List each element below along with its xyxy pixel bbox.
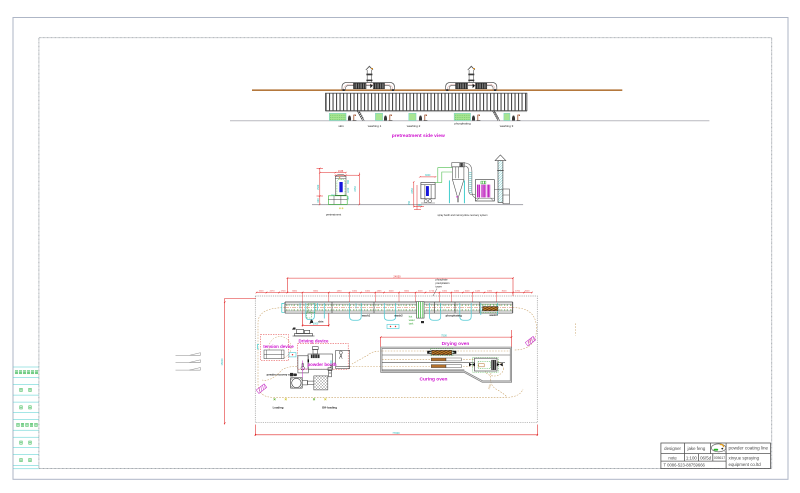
svg-text:wash1: wash1 bbox=[361, 314, 371, 318]
svg-text:xinyue spraying: xinyue spraying bbox=[729, 456, 760, 461]
svg-text:tank: tank bbox=[409, 323, 414, 326]
svg-text:3000: 3000 bbox=[313, 291, 319, 293]
svg-text:Driving device: Driving device bbox=[298, 338, 329, 343]
svg-text:Drying oven: Drying oven bbox=[442, 341, 470, 347]
svg-text:3000: 3000 bbox=[404, 291, 410, 293]
svg-text:skin: skin bbox=[318, 319, 324, 323]
svg-text:15000: 15000 bbox=[220, 358, 224, 366]
svg-text:3000: 3000 bbox=[425, 174, 431, 177]
svg-text:1500: 1500 bbox=[317, 184, 320, 190]
svg-text:tension device: tension device bbox=[263, 344, 294, 349]
svg-text:wash2: wash2 bbox=[393, 314, 403, 318]
svg-text:2350: 2350 bbox=[411, 188, 414, 194]
svg-text:1450: 1450 bbox=[337, 291, 343, 293]
svg-text:equipment co.ltd: equipment co.ltd bbox=[729, 462, 762, 467]
svg-text:1000: 1000 bbox=[352, 291, 358, 293]
svg-text:2270: 2270 bbox=[270, 291, 276, 293]
svg-text:1500: 1500 bbox=[259, 291, 265, 293]
svg-text:06/5d: 06/5d bbox=[700, 455, 712, 460]
svg-text:3000: 3000 bbox=[502, 291, 508, 293]
svg-text:1000: 1000 bbox=[465, 291, 471, 293]
svg-text:1716: 1716 bbox=[429, 291, 435, 293]
svg-text:T 0086-523-88759666: T 0086-523-88759666 bbox=[664, 463, 706, 468]
svg-text:tower: tower bbox=[436, 285, 442, 289]
svg-text:1000: 1000 bbox=[418, 291, 424, 293]
svg-text:1700: 1700 bbox=[515, 291, 521, 293]
svg-text:1445: 1445 bbox=[475, 291, 481, 293]
svg-text:powder coating line: powder coating line bbox=[729, 445, 769, 450]
svg-text:2000: 2000 bbox=[525, 291, 531, 293]
svg-text:1000: 1000 bbox=[365, 291, 371, 293]
svg-text:pretreatment side view: pretreatment side view bbox=[392, 133, 445, 139]
svg-text:1000: 1000 bbox=[389, 291, 395, 293]
svg-text:designer: designer bbox=[664, 446, 681, 451]
svg-text:1445: 1445 bbox=[377, 291, 383, 293]
svg-text:washing 3: washing 3 bbox=[500, 124, 514, 128]
svg-text:350: 350 bbox=[347, 179, 350, 184]
svg-text:Curing oven: Curing oven bbox=[420, 377, 448, 383]
svg-text:7500: 7500 bbox=[441, 333, 447, 337]
svg-text:1000: 1000 bbox=[487, 291, 493, 293]
svg-text:washing 2: washing 2 bbox=[407, 124, 421, 128]
svg-text:Loading: Loading bbox=[273, 406, 284, 410]
svg-text:skin: skin bbox=[338, 124, 344, 128]
svg-text:1:100: 1:100 bbox=[686, 455, 698, 460]
svg-text:1000: 1000 bbox=[454, 291, 460, 293]
svg-text:400: 400 bbox=[418, 204, 423, 207]
svg-text:2350: 2350 bbox=[354, 186, 357, 192]
svg-text:250: 250 bbox=[408, 200, 411, 205]
svg-text:005617: 005617 bbox=[714, 456, 725, 460]
svg-text:spray booth and monocyclone re: spray booth and monocyclone recovery sys… bbox=[438, 214, 488, 217]
svg-text:77000: 77000 bbox=[392, 431, 400, 435]
svg-text:600: 600 bbox=[317, 198, 320, 203]
svg-text:1000: 1000 bbox=[442, 291, 448, 293]
svg-text:phosphating: phosphating bbox=[454, 122, 471, 126]
svg-text:1700: 1700 bbox=[281, 291, 287, 293]
svg-text:washing 1: washing 1 bbox=[368, 124, 382, 128]
svg-text:3000: 3000 bbox=[292, 291, 298, 293]
svg-text:phosphating: phosphating bbox=[446, 314, 462, 318]
svg-text:note: note bbox=[668, 455, 677, 460]
svg-text:Off-loading: Off-loading bbox=[322, 406, 337, 410]
svg-text:wash3: wash3 bbox=[488, 313, 498, 317]
svg-text:1200: 1200 bbox=[347, 187, 350, 193]
svg-text:phosphate: phosphate bbox=[436, 278, 449, 282]
svg-text:precipitation: precipitation bbox=[436, 281, 451, 285]
svg-text:24050: 24050 bbox=[393, 274, 401, 278]
svg-text:jake feng: jake feng bbox=[687, 446, 706, 451]
svg-text:1938: 1938 bbox=[338, 170, 344, 173]
svg-text:pretreatment: pretreatment bbox=[326, 213, 341, 217]
